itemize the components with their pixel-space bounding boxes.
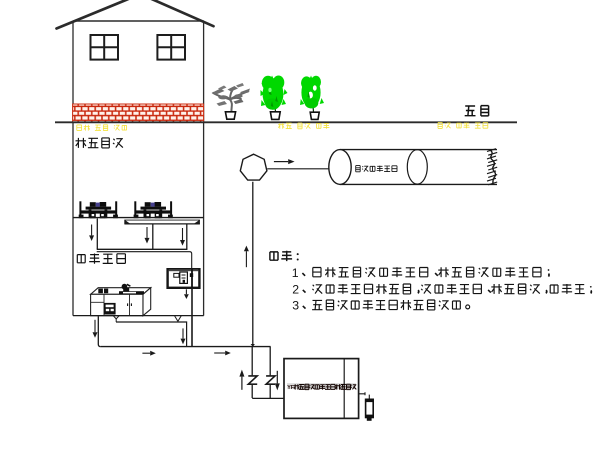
svg-text:1: 1 bbox=[292, 266, 299, 280]
svg-text:2: 2 bbox=[292, 283, 299, 297]
svg-text:3: 3 bbox=[292, 299, 299, 313]
